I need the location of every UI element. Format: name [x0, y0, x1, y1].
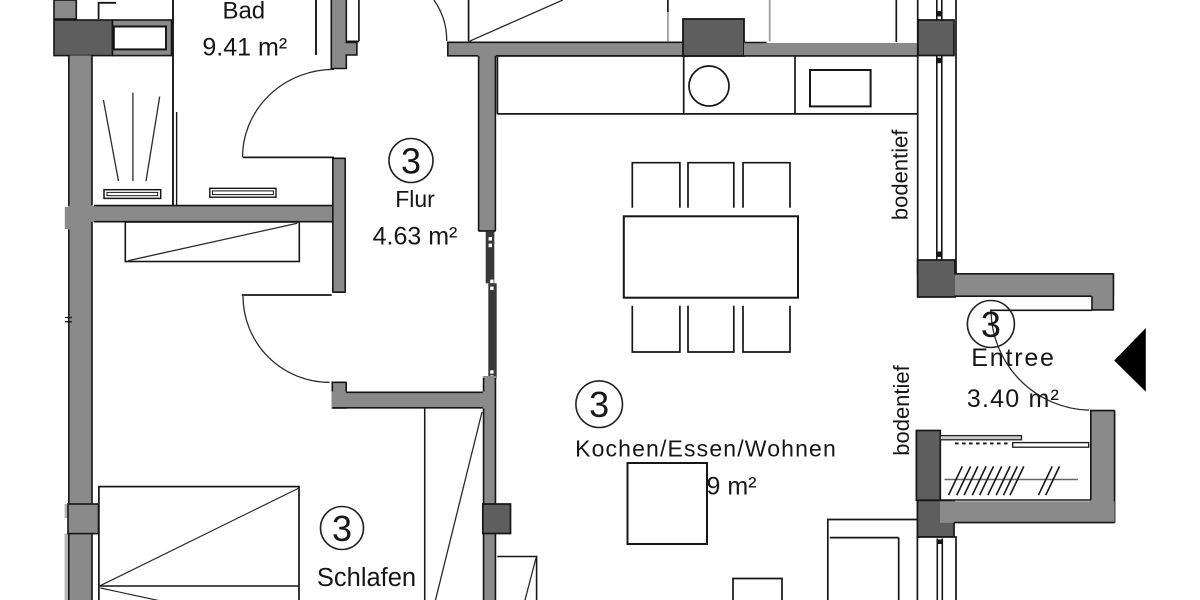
- svg-text:4.63 m²: 4.63 m²: [373, 223, 458, 251]
- svg-text:3.40 m²: 3.40 m²: [967, 385, 1060, 413]
- svg-text:bodentief: bodentief: [888, 129, 913, 220]
- svg-text:Schlafen: Schlafen: [317, 564, 416, 592]
- svg-text:bodentief: bodentief: [889, 364, 914, 455]
- svg-text:Bad: Bad: [222, 0, 265, 25]
- svg-text:Kochen/Essen/Wohnen: Kochen/Essen/Wohnen: [575, 436, 837, 462]
- svg-text:3: 3: [401, 141, 421, 182]
- svg-text:3: 3: [332, 508, 352, 549]
- svg-text:Entree: Entree: [971, 344, 1055, 372]
- svg-text:9.41 m²: 9.41 m²: [202, 34, 287, 62]
- svg-text:Flur: Flur: [395, 186, 435, 212]
- svg-text:3: 3: [589, 384, 609, 425]
- svg-text:3: 3: [981, 304, 1001, 345]
